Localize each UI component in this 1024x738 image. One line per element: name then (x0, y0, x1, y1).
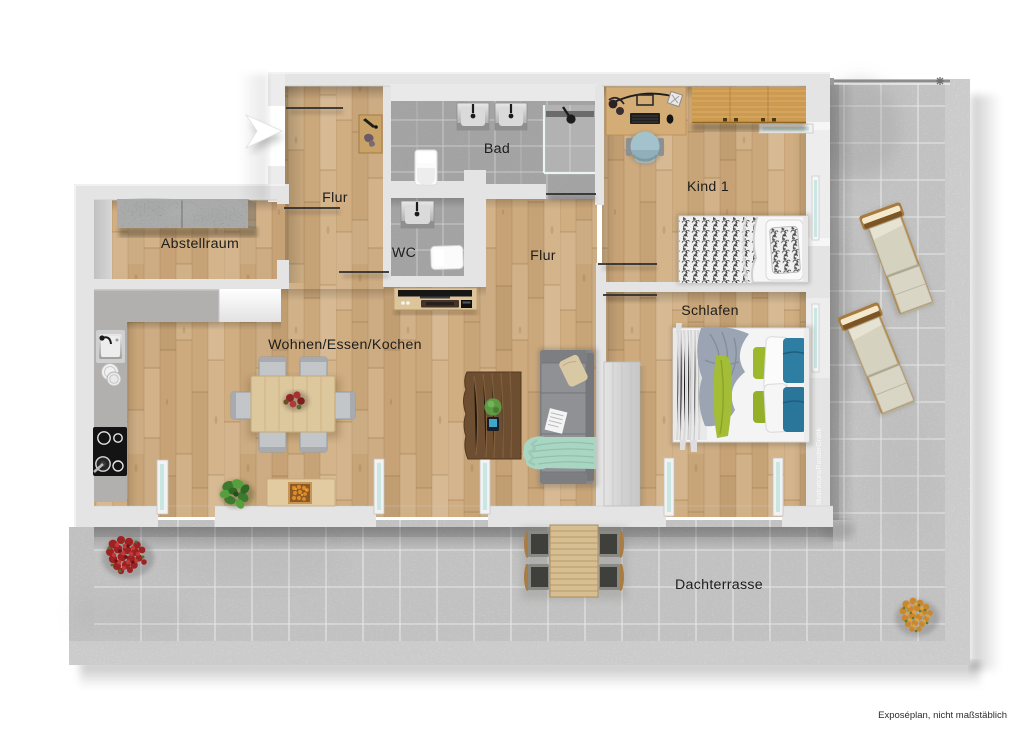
svg-text:Bad: Bad (484, 141, 510, 157)
svg-text:WC: WC (392, 245, 416, 261)
svg-text:Wohnen/Essen/Kochen: Wohnen/Essen/Kochen (268, 337, 422, 353)
svg-text:Kind 1: Kind 1 (687, 179, 729, 195)
svg-text:Abstellraum: Abstellraum (161, 236, 239, 252)
svg-text:Dachterrasse: Dachterrasse (675, 577, 763, 593)
svg-text:Exposéplan, nicht maßstäblich: Exposéplan, nicht maßstäblich (878, 710, 1007, 721)
svg-text:IllustrationsRunderGrafik: IllustrationsRunderGrafik (816, 427, 823, 505)
svg-text:Flur: Flur (530, 248, 556, 264)
svg-text:Schlafen: Schlafen (681, 303, 739, 319)
svg-text:Flur: Flur (322, 190, 348, 206)
